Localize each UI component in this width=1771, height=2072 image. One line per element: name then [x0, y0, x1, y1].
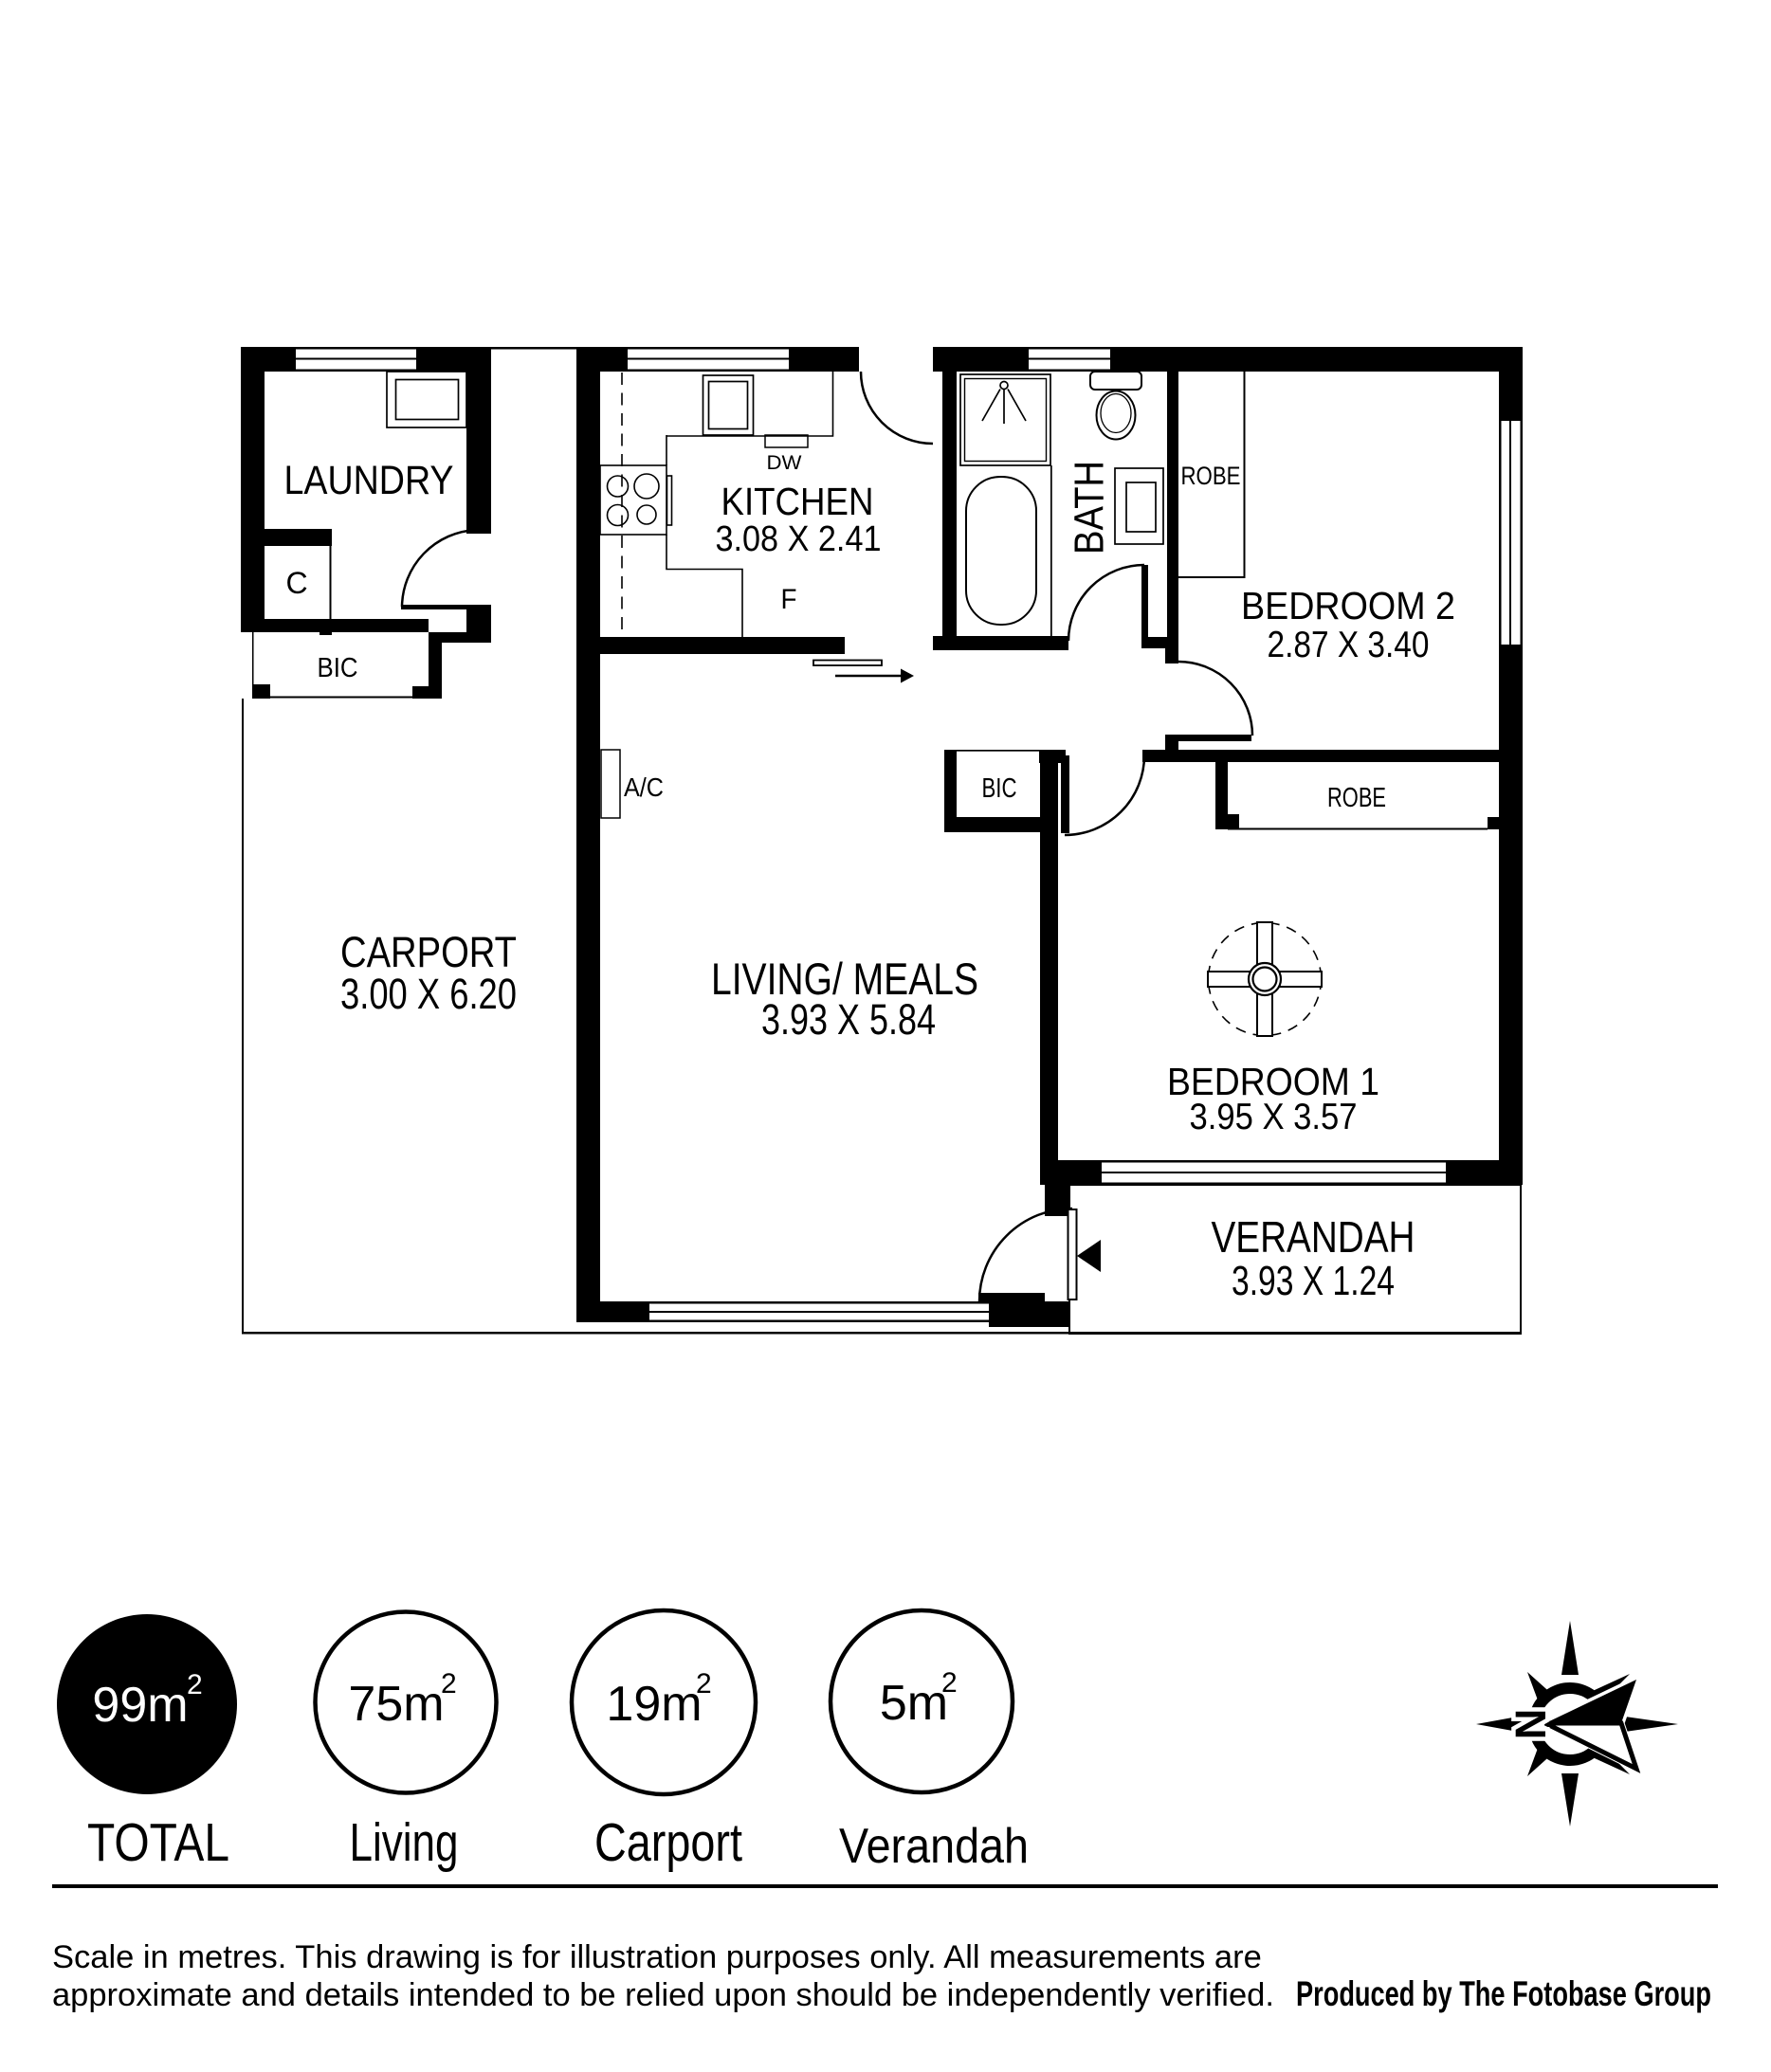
- svg-text:ROBE: ROBE: [1327, 783, 1386, 813]
- svg-text:VERANDAH: VERANDAH: [1212, 1212, 1415, 1262]
- svg-text:N: N: [1506, 1709, 1555, 1740]
- svg-text:BIC: BIC: [318, 653, 358, 683]
- svg-text:BATH: BATH: [1067, 461, 1113, 554]
- svg-text:3.93 X 5.84: 3.93 X 5.84: [761, 995, 936, 1044]
- svg-text:A/C: A/C: [624, 772, 664, 802]
- svg-text:DW: DW: [767, 452, 802, 474]
- svg-text:5m: 5m: [880, 1676, 948, 1731]
- svg-text:approximate and details intend: approximate and details intended to be r…: [52, 1977, 1274, 2013]
- svg-text:Carport: Carport: [594, 1812, 742, 1873]
- svg-text:BEDROOM 2: BEDROOM 2: [1241, 584, 1455, 627]
- svg-text:2: 2: [441, 1668, 457, 1699]
- svg-text:Scale in metres. This drawing: Scale in metres. This drawing is for ill…: [52, 1939, 1262, 1975]
- svg-text:TOTAL: TOTAL: [87, 1812, 229, 1873]
- svg-text:3.93 X 1.24: 3.93 X 1.24: [1232, 1258, 1395, 1304]
- svg-text:19m: 19m: [606, 1677, 702, 1732]
- svg-text:75m: 75m: [348, 1677, 444, 1732]
- svg-text:3.95 X 3.57: 3.95 X 3.57: [1190, 1097, 1358, 1137]
- svg-text:2: 2: [187, 1669, 203, 1700]
- svg-text:Produced by The Fotobase Group: Produced by The Fotobase Group: [1296, 1974, 1711, 2013]
- svg-text:BIC: BIC: [982, 773, 1017, 804]
- svg-text:LAUNDRY: LAUNDRY: [284, 458, 454, 503]
- svg-text:F: F: [781, 584, 797, 615]
- svg-text:3.00 X 6.20: 3.00 X 6.20: [340, 970, 517, 1018]
- svg-text:99m: 99m: [92, 1678, 188, 1733]
- svg-text:2: 2: [696, 1668, 712, 1699]
- svg-text:2.87 X 3.40: 2.87 X 3.40: [1268, 625, 1430, 665]
- svg-text:KITCHEN: KITCHEN: [721, 480, 874, 523]
- svg-text:C: C: [285, 566, 307, 600]
- svg-text:3.08 X 2.41: 3.08 X 2.41: [716, 519, 882, 559]
- svg-text:Verandah: Verandah: [839, 1819, 1029, 1874]
- svg-text:2: 2: [941, 1667, 958, 1699]
- svg-text:Living: Living: [350, 1812, 459, 1873]
- svg-text:ROBE: ROBE: [1181, 462, 1241, 490]
